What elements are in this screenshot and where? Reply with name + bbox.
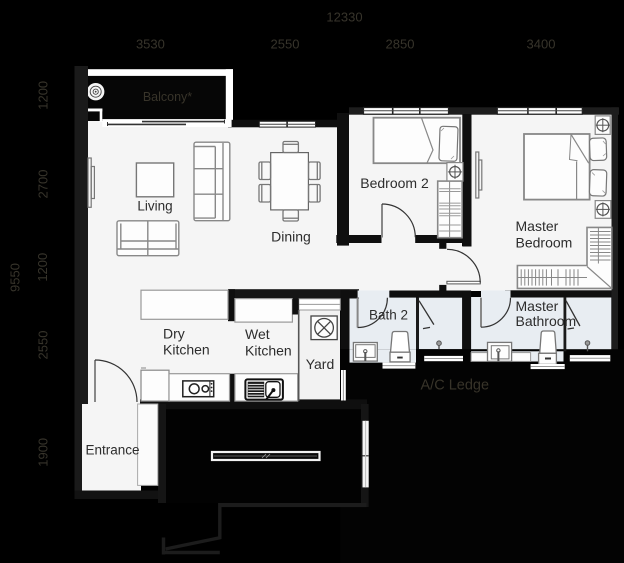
svg-text:1200: 1200	[36, 81, 51, 110]
svg-text:Kitchen: Kitchen	[163, 342, 210, 358]
svg-text:Bath 2: Bath 2	[369, 307, 408, 322]
svg-text:2700: 2700	[36, 170, 51, 199]
svg-text:Master: Master	[516, 218, 559, 234]
svg-text:1200: 1200	[35, 253, 50, 282]
svg-text:Living: Living	[137, 199, 172, 214]
svg-text:2550: 2550	[36, 331, 51, 360]
svg-text:Bedroom: Bedroom	[516, 234, 573, 250]
svg-text:Bathroom: Bathroom	[516, 313, 577, 329]
svg-text:Dry: Dry	[163, 326, 185, 342]
svg-text:Wet: Wet	[245, 326, 270, 342]
svg-text:3400: 3400	[527, 37, 556, 52]
svg-text:Entrance: Entrance	[86, 443, 140, 458]
svg-text:Balcony*: Balcony*	[143, 90, 192, 104]
svg-text:1900: 1900	[36, 438, 51, 467]
svg-text:9550: 9550	[8, 263, 23, 292]
svg-text:Dining: Dining	[271, 229, 311, 245]
svg-text:12330: 12330	[326, 10, 362, 25]
svg-text:3530: 3530	[136, 37, 165, 52]
svg-text:2850: 2850	[386, 37, 415, 52]
svg-text:Yard: Yard	[306, 356, 335, 372]
svg-text:Bedroom 2: Bedroom 2	[360, 175, 429, 191]
svg-text:Master: Master	[516, 298, 559, 314]
svg-text:2550: 2550	[271, 37, 300, 52]
svg-text:Kitchen: Kitchen	[245, 343, 292, 359]
svg-text:A/C Ledge: A/C Ledge	[421, 378, 490, 394]
